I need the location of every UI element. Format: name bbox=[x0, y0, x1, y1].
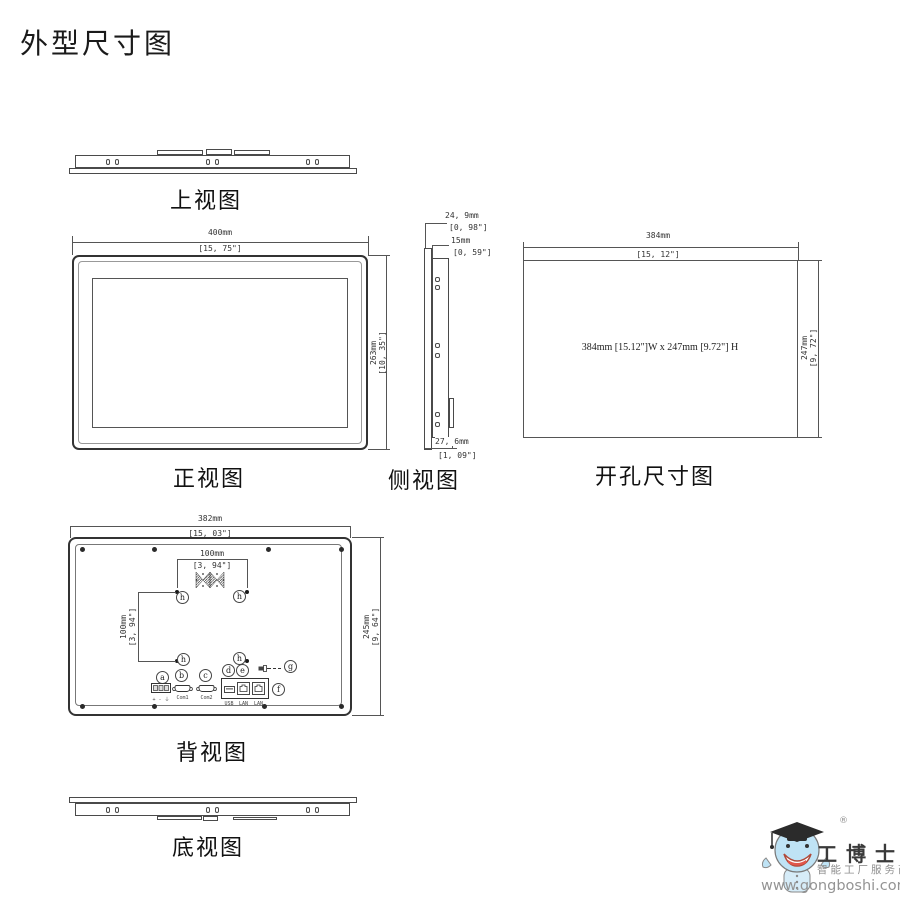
lan-port bbox=[237, 682, 250, 695]
dim-extension-line bbox=[523, 242, 524, 260]
back-height-mm: 245mm bbox=[362, 615, 371, 639]
bottom-view-bump bbox=[157, 816, 202, 820]
screw bbox=[152, 547, 157, 552]
port-letter: c bbox=[203, 671, 207, 680]
cutout-view-label: 开孔尺寸图 bbox=[585, 459, 725, 491]
port-letter: d bbox=[226, 666, 231, 675]
port-letter: a bbox=[160, 673, 165, 682]
top-view-label: 上视图 bbox=[156, 183, 256, 215]
side-view-label: 侧视图 bbox=[374, 463, 474, 495]
screw bbox=[339, 704, 344, 709]
com1-db9-connector bbox=[172, 684, 193, 694]
side-bottom-depth-mm: 27, 6mm bbox=[435, 437, 469, 446]
cutout-width-in: [15, 12"] bbox=[608, 250, 708, 259]
vent-slot bbox=[435, 277, 440, 282]
cutout-width-mm: 384mm bbox=[608, 231, 708, 240]
front-height-in: [10, 35"] bbox=[378, 331, 387, 374]
screw bbox=[80, 547, 85, 552]
dimension-drawing-page: 外型尺寸图 上视图 400mm [15, 75"] 263mm [10, 35"… bbox=[0, 0, 900, 900]
cutout-view: 384mm [15, 12"] 384mm [15.12"]W x 247mm … bbox=[520, 230, 850, 500]
dim-line bbox=[523, 247, 799, 248]
lan1-label: LAN bbox=[237, 701, 250, 707]
port-label-d: d bbox=[222, 664, 235, 677]
back-height-in: [9, 64"] bbox=[371, 608, 380, 647]
side-connector-bump bbox=[449, 398, 454, 428]
dim-extension-line bbox=[432, 245, 433, 258]
front-view-label: 正视图 bbox=[159, 461, 259, 493]
port-letter: f bbox=[277, 685, 280, 694]
vent-slot bbox=[435, 353, 440, 358]
page-title: 外型尺寸图 bbox=[20, 22, 175, 62]
brand-tagline: 智能工厂服务商 bbox=[817, 862, 900, 877]
dim-extension-line bbox=[425, 223, 426, 248]
cutout-center-note: 384mm [15.12"]W x 247mm [9.72"] H bbox=[520, 342, 800, 353]
display-area bbox=[92, 278, 348, 428]
vent-slot bbox=[315, 807, 319, 813]
side-total-depth-mm: 24, 9mm bbox=[445, 211, 479, 220]
vent-slot bbox=[215, 159, 219, 165]
vent-slot bbox=[206, 807, 210, 813]
port-label-h: h bbox=[177, 653, 190, 666]
vent-slot bbox=[306, 807, 310, 813]
dim-extension-line bbox=[247, 559, 248, 588]
dim-extension-line bbox=[350, 526, 351, 538]
port-label-c: c bbox=[199, 669, 212, 682]
dim-line bbox=[425, 448, 457, 449]
dim-extension-line bbox=[368, 236, 369, 255]
vent-slot bbox=[435, 285, 440, 290]
vent-slot bbox=[115, 807, 119, 813]
dim-line bbox=[72, 242, 368, 243]
side-view: 24, 9mm [0, 98"] 15mm [0, 59"] 27, 6mm [… bbox=[405, 205, 515, 495]
vesa-v-mm: 100mm bbox=[119, 615, 128, 639]
back-view-label: 背视图 bbox=[162, 735, 262, 767]
port-letter: h bbox=[180, 593, 185, 602]
vent-slot bbox=[435, 412, 440, 417]
back-height-dim: 245mm [9, 64"] bbox=[361, 592, 381, 662]
top-view-bezel bbox=[69, 168, 357, 174]
vesa-v-dim: 100mm [3, 94"] bbox=[118, 592, 138, 662]
vent-slot bbox=[315, 159, 319, 165]
screw bbox=[266, 547, 271, 552]
back-view: 382mm [15, 03"] h h h h 100mm [3, 94"] bbox=[60, 505, 400, 775]
cutout-height-mm: 247mm bbox=[800, 336, 809, 360]
power-terminal-label: + - ⏚ bbox=[151, 696, 171, 703]
port-label-e: e bbox=[236, 664, 249, 677]
port-label-h: h bbox=[176, 591, 189, 604]
usb-port bbox=[224, 686, 235, 693]
registered-mark: ® bbox=[839, 816, 848, 826]
port-letter: b bbox=[179, 671, 184, 680]
antenna-connector bbox=[258, 664, 282, 673]
bottom-view-label: 底视图 bbox=[148, 830, 268, 862]
side-total-depth-in: [0, 98"] bbox=[449, 223, 488, 232]
front-height-dim: 263mm [10, 35"] bbox=[368, 318, 388, 388]
vent-slot bbox=[206, 159, 210, 165]
port-letter: h bbox=[181, 655, 186, 664]
port-label-g: g bbox=[284, 660, 297, 673]
com2-db9-connector bbox=[196, 684, 217, 694]
dim-extension-line bbox=[70, 526, 71, 538]
vent-slot bbox=[435, 422, 440, 427]
usb-label: USB bbox=[223, 701, 235, 707]
screw bbox=[80, 704, 85, 709]
dim-line bbox=[138, 592, 139, 661]
top-view: 上视图 bbox=[62, 145, 362, 215]
screw bbox=[152, 704, 157, 709]
lan-port bbox=[252, 682, 265, 695]
dim-extension-line bbox=[72, 236, 73, 255]
side-body-depth-in: [0, 59"] bbox=[453, 248, 492, 257]
dim-line bbox=[432, 245, 449, 246]
bottom-view: 底视图 bbox=[62, 790, 362, 870]
dim-line bbox=[177, 559, 247, 560]
vent-slot bbox=[106, 159, 110, 165]
port-letter: e bbox=[240, 666, 245, 675]
side-bottom-depth-in: [1, 09"] bbox=[438, 451, 477, 460]
dim-extension-line bbox=[138, 592, 176, 593]
front-view: 400mm [15, 75"] 263mm [10, 35"] 正视图 bbox=[62, 230, 402, 500]
bottom-view-bump bbox=[233, 817, 277, 820]
vesa-h-in: [3, 94"] bbox=[177, 561, 247, 570]
vesa-v-in: [3, 94"] bbox=[128, 608, 137, 647]
cutout-height-dim: 247mm [9, 72"] bbox=[799, 313, 819, 383]
bottom-view-bump bbox=[203, 816, 218, 821]
port-label-b: b bbox=[175, 669, 188, 682]
dim-line bbox=[425, 223, 447, 224]
front-width-in: [15, 75"] bbox=[170, 244, 270, 253]
dim-extension-line bbox=[138, 661, 176, 662]
front-height-mm: 263mm bbox=[369, 341, 378, 365]
vent-slot bbox=[115, 159, 119, 165]
vent-slot bbox=[106, 807, 110, 813]
vent-slot bbox=[435, 343, 440, 348]
com1-label: Com1 bbox=[172, 695, 193, 701]
port-label-f: f bbox=[272, 683, 285, 696]
back-width-mm: 382mm bbox=[160, 514, 260, 523]
front-width-mm: 400mm bbox=[170, 228, 270, 237]
brand-url: www.gongboshi.com bbox=[761, 878, 900, 894]
speaker-vent-pattern bbox=[195, 571, 225, 589]
vent-slot bbox=[306, 159, 310, 165]
port-label-h: h bbox=[233, 590, 246, 603]
com2-label: Com2 bbox=[196, 695, 217, 701]
port-letter: h bbox=[237, 654, 242, 663]
port-label-h: h bbox=[233, 652, 246, 665]
vesa-h-mm: 100mm bbox=[177, 549, 247, 558]
vent-slot bbox=[215, 807, 219, 813]
side-bezel-profile bbox=[424, 248, 432, 450]
dim-extension-line bbox=[798, 242, 799, 260]
cutout-height-in: [9, 72"] bbox=[809, 329, 818, 368]
port-letter: g bbox=[288, 662, 293, 671]
power-terminal bbox=[151, 683, 171, 695]
screw bbox=[339, 547, 344, 552]
logo: ® 工博士 智能工厂服务商 www.gongboshi.com bbox=[755, 808, 900, 898]
side-body-depth-mm: 15mm bbox=[451, 236, 470, 245]
port-letter: h bbox=[237, 592, 242, 601]
lan2-label: LAN bbox=[252, 701, 265, 707]
dim-line bbox=[70, 526, 351, 527]
